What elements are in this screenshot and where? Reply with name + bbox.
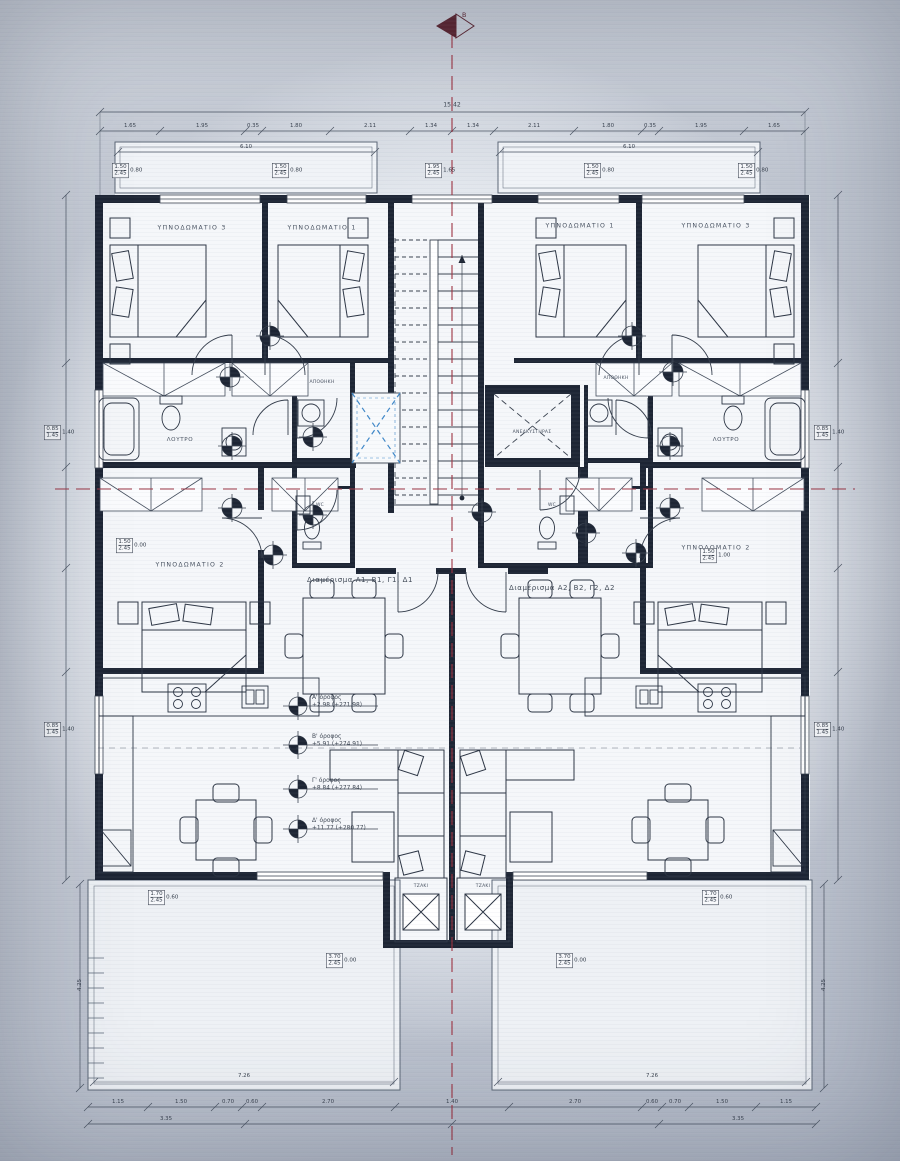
window-sill: 0.60 xyxy=(166,894,178,900)
dim-top: 1.34 xyxy=(467,123,479,129)
window-height: 2.45 xyxy=(328,961,340,967)
dim-top: 2.11 xyxy=(364,123,376,129)
level-elevation: +2.98 (+271.98) xyxy=(312,702,362,710)
window-tag: 0.851.451.40 xyxy=(44,722,74,737)
window-sill: 0.80 xyxy=(290,167,302,173)
window-sill: 0.80 xyxy=(602,167,614,173)
level-annotation-c: Γ' όροφος +8.84 (+277.84) xyxy=(312,777,362,792)
dim-bottom: 1.50 xyxy=(175,1099,187,1105)
window-tag: 1.502.450.00 xyxy=(116,538,146,553)
level-name: Β' όροφος xyxy=(312,733,362,741)
dim-overall-top: 15.42 xyxy=(443,102,461,109)
window-height: 1.45 xyxy=(816,433,828,439)
dim-bottom: 0.60 xyxy=(246,1099,258,1105)
dim-top: 0.35 xyxy=(247,123,259,129)
dim-top: 1.65 xyxy=(124,123,136,129)
dim-bottom: 1.50 xyxy=(716,1099,728,1105)
window-height: 1.45 xyxy=(816,730,828,736)
dim-bottom: 1.40 xyxy=(446,1099,458,1105)
room-label-storage-left: ΑΠΟΘΗΚΗ xyxy=(309,380,334,385)
dim-top: 1.80 xyxy=(602,123,614,129)
level-annotation-b: Β' όροφος +5.91 (+274.91) xyxy=(312,733,362,748)
dim-terrace-left: 7.26 xyxy=(238,1073,250,1079)
window-tag: 1.702.450.60 xyxy=(148,890,178,905)
window-tag: 3.702.450.00 xyxy=(326,953,356,968)
window-height: 2.45 xyxy=(586,171,598,177)
window-sill: 0.00 xyxy=(344,957,356,963)
room-label-bedroom3-left: ΥΠΝΟΔΩΜΑΤΙΟ 3 xyxy=(157,225,226,232)
dim-bottom: 0.60 xyxy=(646,1099,658,1105)
window-sill: 1.00 xyxy=(718,552,730,558)
room-label-elevator: ΑΝΕΛΚΥΣΤΗΡΑΣ xyxy=(513,430,552,435)
dim-bottom: 2.70 xyxy=(569,1099,581,1105)
room-label-bath-left: ΛΟΥΤΡΟ xyxy=(167,437,194,443)
floor-plan-photo: ΥΠΝΟΔΩΜΑΤΙΟ 3 ΥΠΝΟΔΩΜΑΤΙΟ 1 ΥΠΝΟΔΩΜΑΤΙΟ … xyxy=(0,0,900,1161)
window-tag: 0.851.451.40 xyxy=(814,722,844,737)
window-height: 2.45 xyxy=(740,171,752,177)
light-well xyxy=(352,393,400,463)
north-arrow-icon xyxy=(436,14,474,38)
level-annotation-d: Δ' όροφος +11.77 (+280.77) xyxy=(312,817,366,832)
dim-terrace-right: 7.26 xyxy=(646,1073,658,1079)
dim-bottom: 1.15 xyxy=(112,1099,124,1105)
level-elevation: +5.91 (+274.91) xyxy=(312,741,362,749)
room-label-bedroom1-left: ΥΠΝΟΔΩΜΑΤΙΟ 1 xyxy=(287,225,356,232)
window-height: 2.45 xyxy=(702,556,714,562)
room-label-storage-right: ΑΠΟΘΗΚΗ xyxy=(603,376,628,381)
window-height: 2.45 xyxy=(427,171,439,177)
dim-top: 1.34 xyxy=(425,123,437,129)
north-arrow-label: Β xyxy=(462,12,466,19)
level-name: Γ' όροφος xyxy=(312,777,362,785)
window-sill: 0.80 xyxy=(756,167,768,173)
window-sill: 1.40 xyxy=(62,429,74,435)
window-sill: 1.40 xyxy=(832,429,844,435)
window-sill: 1.40 xyxy=(62,726,74,732)
window-tag: 1.502.450.80 xyxy=(584,163,614,178)
room-label-wc-left: WC xyxy=(316,503,324,508)
window-sill: 0.00 xyxy=(134,542,146,548)
window-tag: 0.851.451.40 xyxy=(44,425,74,440)
window-height: 2.45 xyxy=(558,961,570,967)
window-tag: 1.952.451.65 xyxy=(425,163,455,178)
window-sill: 1.65 xyxy=(443,167,455,173)
room-label-bath-right: ΛΟΥΤΡΟ xyxy=(713,437,740,443)
window-height: 1.45 xyxy=(46,433,58,439)
dim-side-left: 4.25 xyxy=(77,979,83,991)
window-sill: 0.80 xyxy=(130,167,142,173)
window-height: 2.45 xyxy=(150,898,162,904)
window-tag: 1.502.450.80 xyxy=(272,163,302,178)
dim-bottom: 1.15 xyxy=(780,1099,792,1105)
window-sill: 1.40 xyxy=(832,726,844,732)
level-elevation: +11.77 (+280.77) xyxy=(312,825,366,833)
window-height: 2.45 xyxy=(274,171,286,177)
room-label-wc-right: WC xyxy=(548,503,556,508)
window-height: 1.45 xyxy=(46,730,58,736)
window-tag: 3.702.450.00 xyxy=(556,953,586,968)
window-height: 2.45 xyxy=(118,546,130,552)
dim-bottom: 0.70 xyxy=(669,1099,681,1105)
apartment-label-right: Διαμέρισμα Α2, Β2, Γ2, Δ2 xyxy=(509,584,615,592)
dim-bottom: 0.70 xyxy=(222,1099,234,1105)
room-label-fireplace-left: ΤΖΑΚΙ xyxy=(414,884,428,889)
dim-bottom-sub: 3.35 xyxy=(160,1116,172,1122)
window-tag: 0.851.451.40 xyxy=(814,425,844,440)
dim-bottom-sub: 3.35 xyxy=(732,1116,744,1122)
window-tag: 1.502.450.80 xyxy=(112,163,142,178)
dim-top: 1.95 xyxy=(196,123,208,129)
room-label-bedroom3-right: ΥΠΝΟΔΩΜΑΤΙΟ 3 xyxy=(681,223,750,230)
window-height: 2.45 xyxy=(704,898,716,904)
dim-top: 1.80 xyxy=(290,123,302,129)
window-sill: 0.00 xyxy=(574,957,586,963)
room-label-bedroom1-right: ΥΠΝΟΔΩΜΑΤΙΟ 1 xyxy=(545,223,614,230)
dim-top: 2.11 xyxy=(528,123,540,129)
level-elevation: +8.84 (+277.84) xyxy=(312,785,362,793)
window-tag: 1.702.450.60 xyxy=(702,890,732,905)
dim-top: 1.65 xyxy=(768,123,780,129)
dim-top: 1.95 xyxy=(695,123,707,129)
window-sill: 0.60 xyxy=(720,894,732,900)
apartment-label-left: Διαμέρισμα Α1, Β1, Γ1, Δ1 xyxy=(307,576,413,584)
elevator-shaft xyxy=(485,385,580,467)
level-name: Δ' όροφος xyxy=(312,817,366,825)
level-name: Α' όροφος xyxy=(312,694,362,702)
window-height: 2.45 xyxy=(114,171,126,177)
window-tag: 1.502.451.00 xyxy=(700,548,730,563)
dim-bottom: 2.70 xyxy=(322,1099,334,1105)
room-label-bedroom2-left: ΥΠΝΟΔΩΜΑΤΙΟ 2 xyxy=(155,562,224,569)
dim-balcony-left: 6.10 xyxy=(240,144,252,150)
dim-balcony-right: 6.10 xyxy=(623,144,635,150)
level-annotation-a: Α' όροφος +2.98 (+271.98) xyxy=(312,694,362,709)
dim-side-right: 4.25 xyxy=(821,979,827,991)
window-tag: 1.502.450.80 xyxy=(738,163,768,178)
dim-top: 0.35 xyxy=(644,123,656,129)
room-label-fireplace-right: ΤΖΑΚΙ xyxy=(476,884,490,889)
